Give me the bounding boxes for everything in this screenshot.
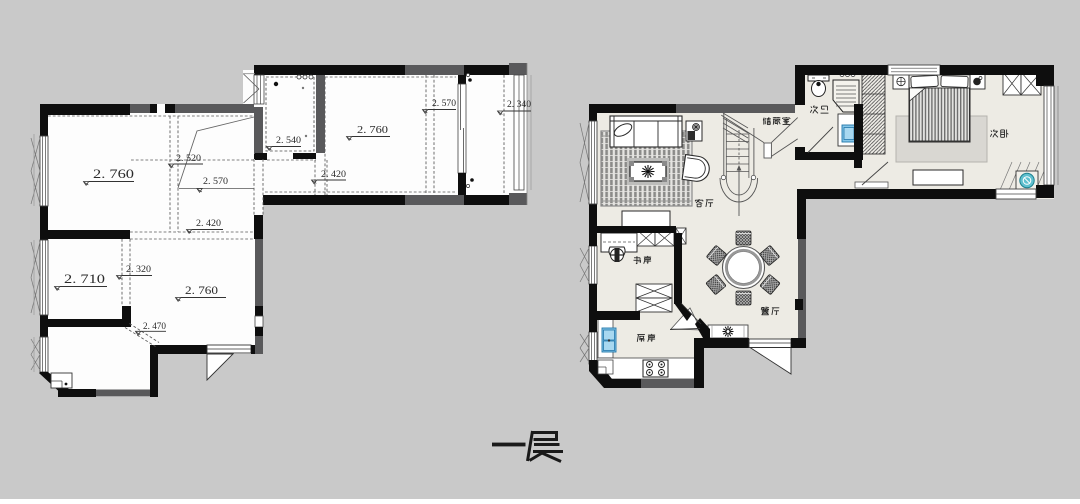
svg-text:2. 570: 2. 570	[432, 98, 457, 108]
svg-text:2. 570: 2. 570	[203, 176, 229, 186]
svg-text:2. 340: 2. 340	[507, 99, 532, 109]
svg-text:2. 760: 2. 760	[185, 283, 218, 297]
svg-text:2. 710: 2. 710	[64, 271, 105, 286]
svg-text:2. 760: 2. 760	[357, 124, 389, 136]
svg-text:2. 420: 2. 420	[196, 218, 222, 228]
svg-text:2. 520: 2. 520	[176, 153, 202, 163]
svg-text:2. 760: 2. 760	[93, 166, 134, 181]
svg-text:2. 470: 2. 470	[143, 321, 167, 331]
svg-text:2. 540: 2. 540	[276, 135, 302, 145]
svg-text:2. 320: 2. 320	[126, 264, 152, 274]
svg-text:2. 420: 2. 420	[321, 169, 347, 179]
